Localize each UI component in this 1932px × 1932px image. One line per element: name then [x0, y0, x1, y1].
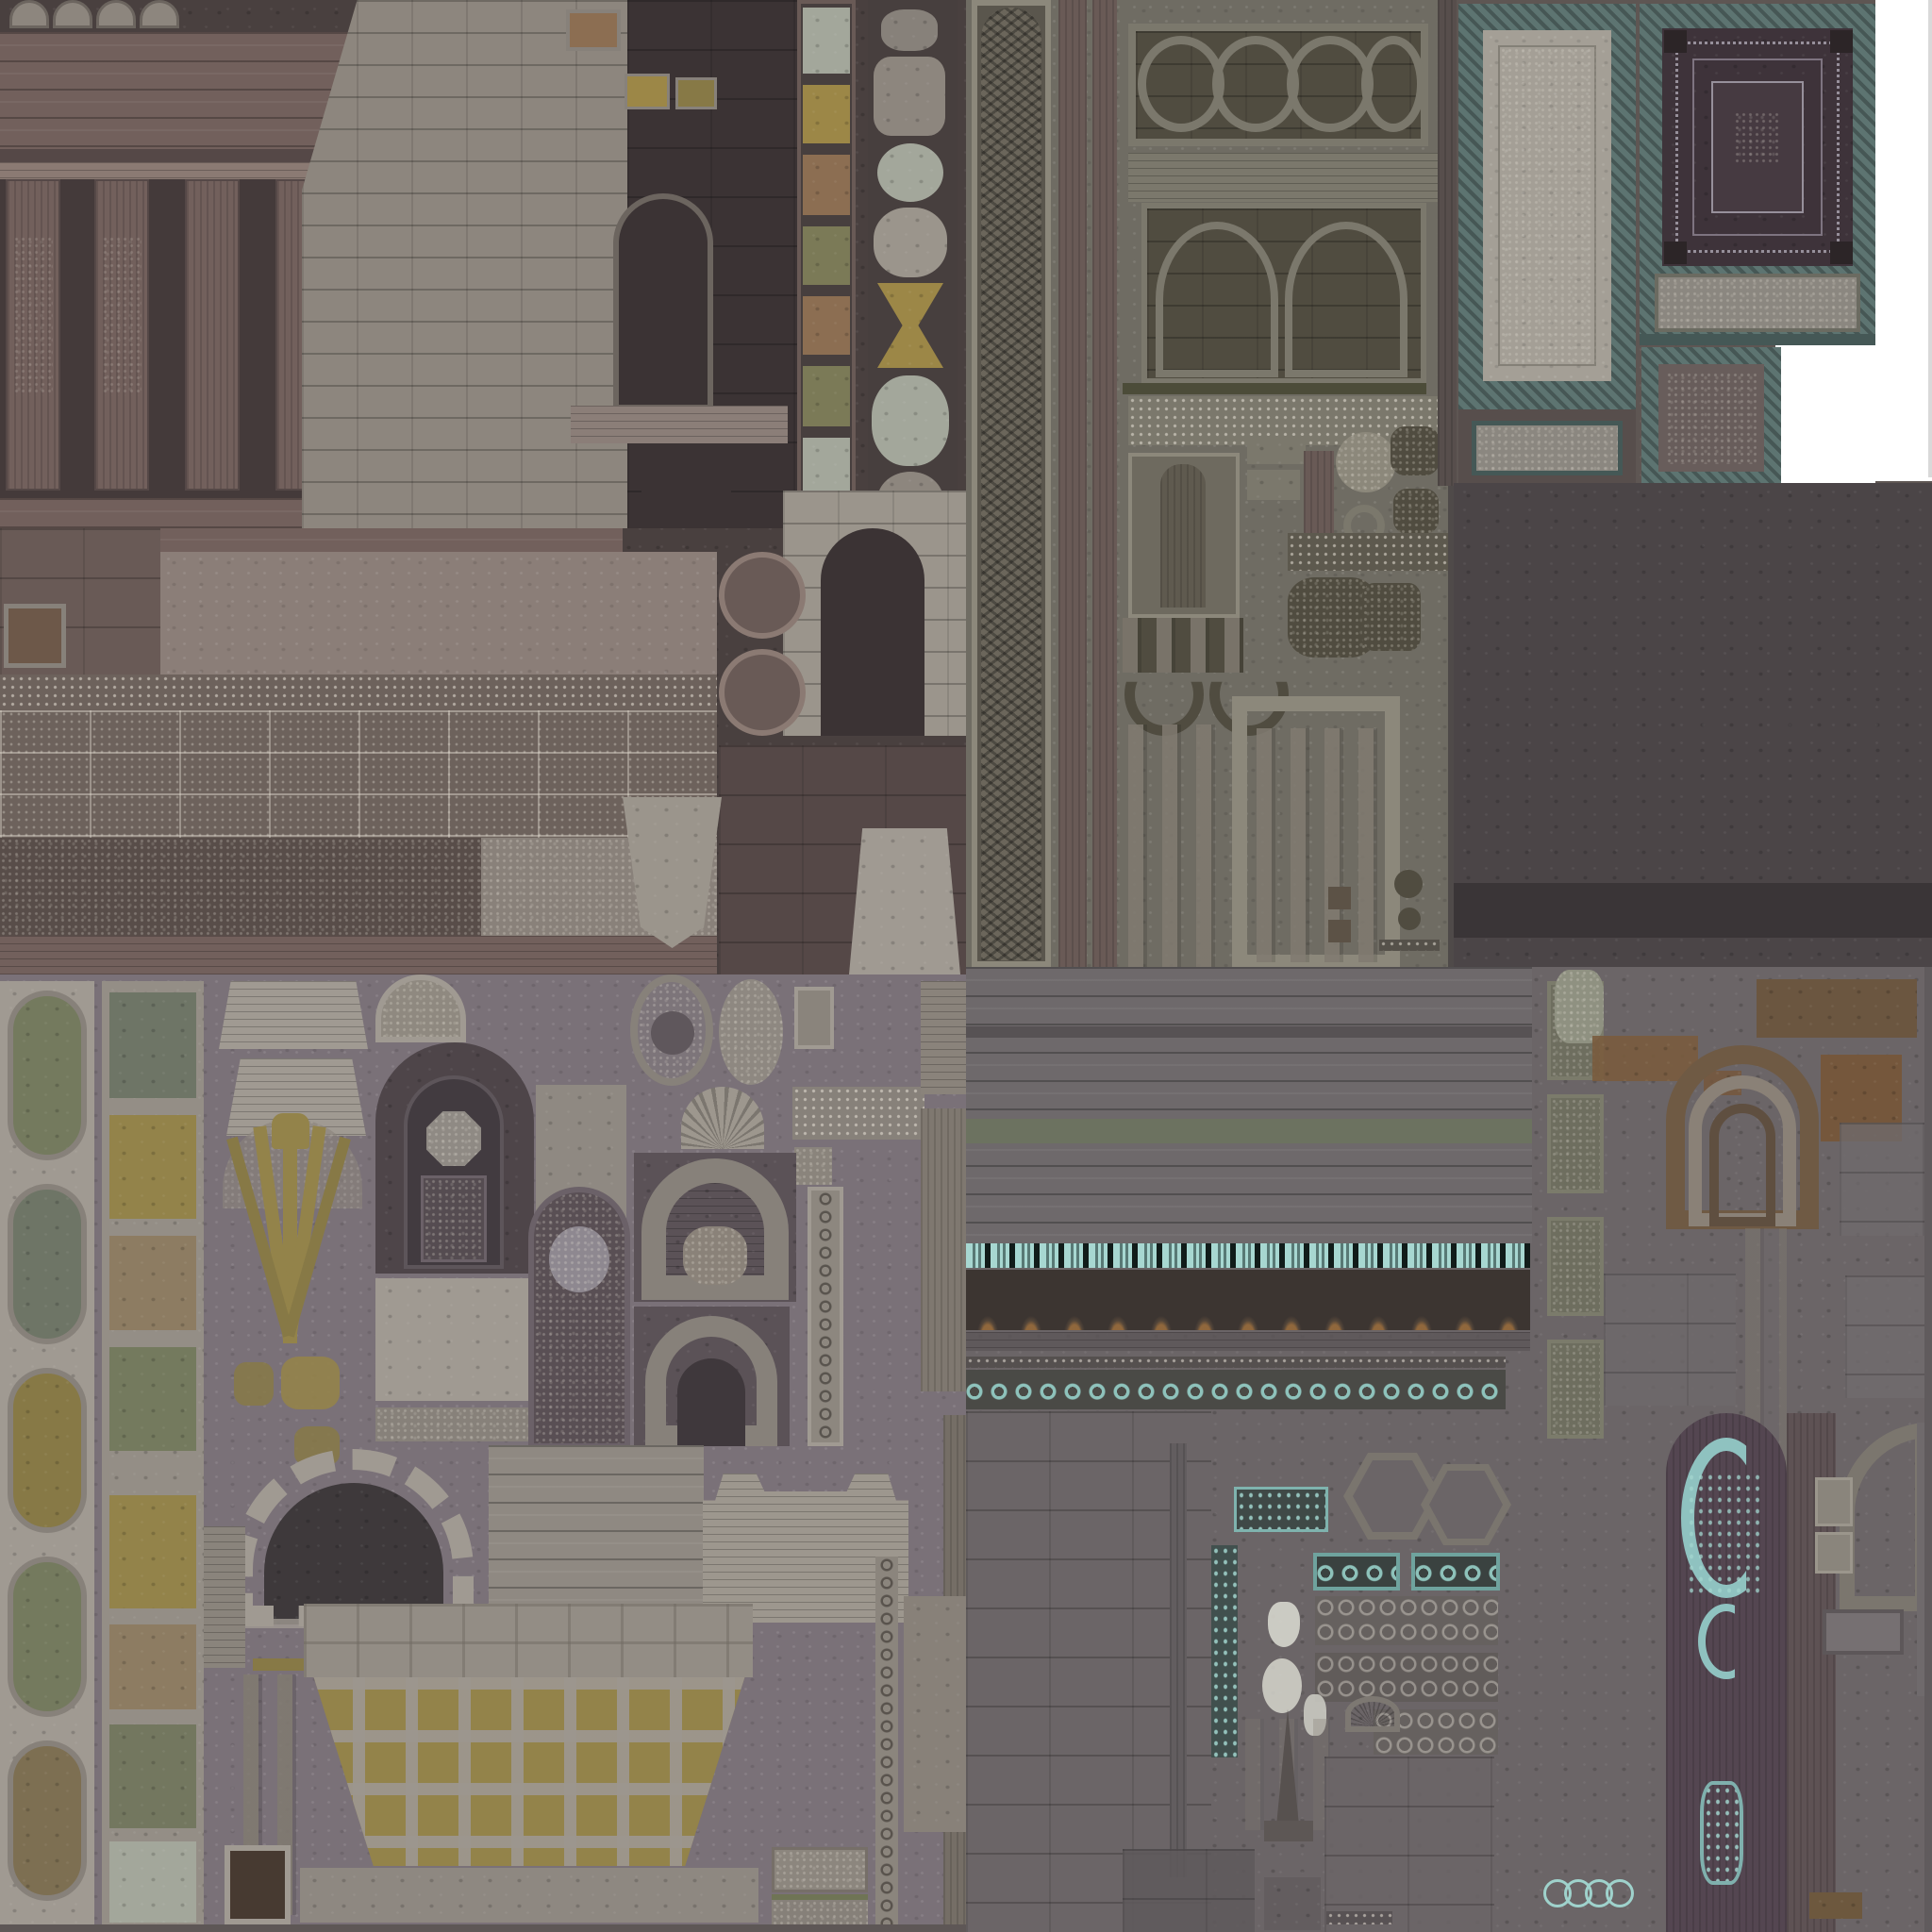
spire-base: [1264, 1821, 1313, 1841]
mini-tile: [1328, 920, 1351, 942]
faint-plaque: [1845, 1275, 1926, 1398]
faint-blocks: [1604, 1274, 1736, 1406]
tile-copper: [803, 155, 850, 215]
baluster-carving: [13, 236, 53, 396]
coffer-rosette: [1734, 111, 1781, 164]
big-tile: [109, 1724, 196, 1828]
leaf-frieze-cyan: [966, 1243, 1530, 1268]
trim-strip: [1058, 0, 1087, 967]
banded-slab-wide: [489, 1445, 704, 1623]
mini-tile: [1328, 887, 1351, 909]
stone-slab: [160, 552, 717, 675]
small-block: [1247, 470, 1300, 500]
frieze-ring: [1361, 36, 1425, 132]
brown-framed-square: [225, 1845, 291, 1924]
chain-medallion: [877, 143, 943, 202]
strip-vertical: [204, 1526, 245, 1668]
beaded-rail: [0, 675, 717, 710]
arch-cut: [821, 528, 924, 736]
big-tile: [109, 1624, 196, 1709]
ornate-pilaster-strip: [808, 1187, 843, 1446]
fan-small: [1345, 1696, 1400, 1732]
cartouche: [8, 1557, 87, 1717]
oval-face-white: [1262, 1658, 1302, 1713]
gold-trellis: [300, 1677, 758, 1866]
niche-shaft: [1160, 464, 1206, 608]
baluster: [185, 179, 240, 491]
glyph-row: [1379, 940, 1440, 951]
teal-lace-drop: [1700, 1781, 1743, 1885]
cartouche: [8, 1740, 87, 1901]
right-plaque: [1815, 1532, 1853, 1574]
coffer-corner: [1664, 241, 1687, 264]
gold-tile-small: [675, 77, 717, 109]
edge-strip-grain: [921, 1108, 966, 1391]
big-tile: [109, 1495, 196, 1608]
small-coffer-scroll: [1666, 372, 1757, 464]
tracery-ogee: [1156, 222, 1278, 377]
faint-rail: [966, 1332, 1530, 1351]
coffer-corner: [1830, 30, 1853, 53]
small-plaque: [794, 987, 834, 1049]
leaf-medallion: [1555, 970, 1604, 1043]
chain-medallion: [874, 208, 947, 277]
cornice-sprite: [219, 981, 368, 1049]
round-medallion: [719, 552, 806, 639]
dotted-bar: [1288, 533, 1456, 571]
right-panel: [1823, 1609, 1904, 1655]
footing-plaque: [1472, 421, 1623, 475]
braid-carving: [981, 8, 1041, 960]
rust-patch: [1757, 979, 1917, 1038]
interlaced-ring: [1606, 1879, 1634, 1907]
faint-block-steps: [1324, 1757, 1494, 1932]
buttress-brickwork: [302, 0, 627, 528]
chain-medallion: [872, 375, 949, 466]
sheetC-left-strip: [1438, 0, 1457, 486]
framed-square-tile: [4, 604, 66, 668]
tile-silver: [803, 8, 850, 74]
relief-figure-carving: [1498, 45, 1596, 366]
mauve-strip: [0, 936, 717, 974]
pier-arch-opening: [613, 193, 713, 410]
pilaster-line: [1170, 1443, 1187, 1877]
texture-atlas: [0, 0, 1932, 1932]
mottled-slab-right: [904, 1596, 966, 1832]
white-unused-notch: [1775, 340, 1875, 483]
acanthus-frieze: [966, 1270, 1530, 1330]
rosette-tile: [1394, 870, 1423, 898]
speckled-slab: [375, 1278, 534, 1401]
gold-tile-small: [566, 9, 621, 51]
moss-strip: [1123, 383, 1426, 394]
rosette-tile: [1398, 908, 1421, 930]
figure-plaque-teal: [1234, 1487, 1328, 1532]
sun-oval-core: [651, 1011, 694, 1055]
cartouche: [8, 991, 87, 1160]
lintel-piece: [571, 406, 788, 443]
tracery-rail-teal: [1411, 1553, 1500, 1591]
cross-flower: [1362, 583, 1421, 651]
tile-green: [803, 366, 850, 426]
big-tile: [109, 1841, 196, 1923]
bottom-edge-strip: [0, 1924, 966, 1932]
right-edge-col: [1924, 967, 1932, 1932]
right-plaque: [1815, 1477, 1853, 1526]
sword-crown: [272, 1113, 309, 1149]
wave-scroll-band: [966, 1370, 1506, 1409]
white-edge-line: [1928, 0, 1932, 477]
dark-groove: [966, 1026, 1532, 1038]
round-medallion: [719, 649, 806, 736]
tracery-rail-teal: [1313, 1553, 1400, 1591]
chain-medallion: [881, 9, 938, 51]
big-tile: [109, 1236, 196, 1330]
cartouche: [8, 1184, 87, 1344]
baluster-carving: [102, 236, 142, 396]
dark-sprite-blocks: [1123, 1849, 1255, 1932]
dotted-grid-band: [0, 710, 717, 838]
cornice-band: [1128, 153, 1454, 202]
chain-medallion: [874, 57, 945, 136]
teal-paisley-dots: [1687, 1472, 1762, 1594]
face-plaque: [1547, 1340, 1604, 1439]
tile-gold: [803, 85, 850, 143]
mauve-bar: [1304, 451, 1334, 545]
trellis-upper-tier: [304, 1604, 753, 1677]
big-tile: [109, 992, 196, 1098]
face-plaque: [1547, 1217, 1604, 1316]
scalloped-base: [1123, 618, 1243, 673]
faint-plaque: [1840, 1123, 1932, 1236]
arch-rosette: [683, 1226, 747, 1285]
green-band: [966, 1119, 1532, 1143]
lancet-row: [1315, 1653, 1498, 1702]
chain-border-vertical: [875, 1557, 898, 1932]
lancet-row: [1315, 1596, 1498, 1645]
tile-green: [803, 226, 850, 285]
gold-fragment: [234, 1362, 274, 1406]
big-tile: [109, 1115, 196, 1219]
lace-plaque: [772, 1847, 868, 1892]
edge-strip-banded: [921, 981, 966, 1094]
lace-strip: [375, 1407, 534, 1441]
tracery-ogee: [1285, 222, 1407, 377]
small-square: [794, 1147, 832, 1185]
trellis-under-slab: [300, 1868, 758, 1923]
white-unused-right: [1875, 0, 1932, 481]
vine-strip-vertical: [1211, 1545, 1238, 1757]
big-tile: [109, 1347, 196, 1451]
dark-groove-band: [1454, 883, 1932, 938]
sunface-medallion: [549, 1226, 609, 1292]
niche-plaque: [421, 1175, 487, 1262]
leaf-sprig: [1391, 426, 1440, 475]
tile-copper: [803, 296, 850, 355]
rust-chip-bottom: [1809, 1892, 1862, 1919]
trim-strip: [1092, 0, 1117, 967]
leaf-sprig: [1393, 489, 1439, 534]
doorway-dark: [641, 443, 731, 528]
coffer-plaque: [1655, 274, 1860, 332]
rosette-disc: [1336, 432, 1396, 492]
banded-wall: [966, 967, 1532, 1243]
mask-white: [1268, 1602, 1300, 1647]
gold-fragment: [281, 1357, 340, 1409]
gold-tile-small: [625, 74, 670, 109]
small-block: [1247, 436, 1306, 464]
slat-group: [1128, 724, 1223, 968]
cartouche: [8, 1368, 87, 1533]
face-plaque: [1547, 1094, 1604, 1193]
coffer-frame-bottom: [1640, 334, 1875, 345]
keystone-block: [849, 828, 960, 974]
arch-door-dark: [677, 1358, 745, 1446]
dentil-dot-band: [966, 1357, 1506, 1368]
tree-oval-medallion: [719, 979, 783, 1085]
beaded-bar: [792, 1087, 924, 1140]
coffer-corner: [1664, 30, 1687, 53]
dark-sprite: [1264, 1877, 1321, 1930]
coffer-corner: [1830, 241, 1853, 264]
gate-slats: [1257, 728, 1377, 962]
ruined-arch-ring: [1709, 1104, 1775, 1226]
glyph-chips: [1326, 1911, 1392, 1924]
